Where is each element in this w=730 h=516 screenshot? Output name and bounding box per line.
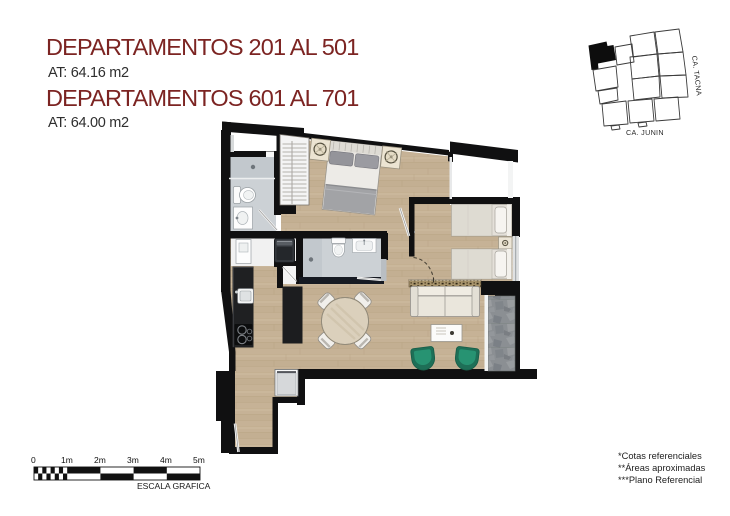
svg-text:ESCALA GRAFICA: ESCALA GRAFICA (137, 481, 211, 491)
svg-text:4m: 4m (160, 455, 172, 465)
svg-text:1m: 1m (61, 455, 73, 465)
svg-text:3m: 3m (127, 455, 139, 465)
svg-text:2m: 2m (94, 455, 106, 465)
svg-text:5m: 5m (193, 455, 205, 465)
svg-text:CA. JUNIN: CA. JUNIN (626, 128, 664, 137)
svg-text:CA. TACNA: CA. TACNA (690, 55, 704, 96)
svg-text:0: 0 (31, 455, 36, 465)
